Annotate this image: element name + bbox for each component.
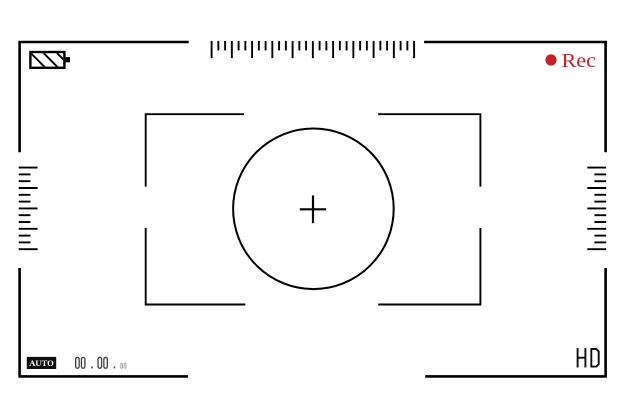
svg-text:AUTO: AUTO: [29, 358, 54, 368]
svg-text:Rec: Rec: [562, 50, 597, 72]
